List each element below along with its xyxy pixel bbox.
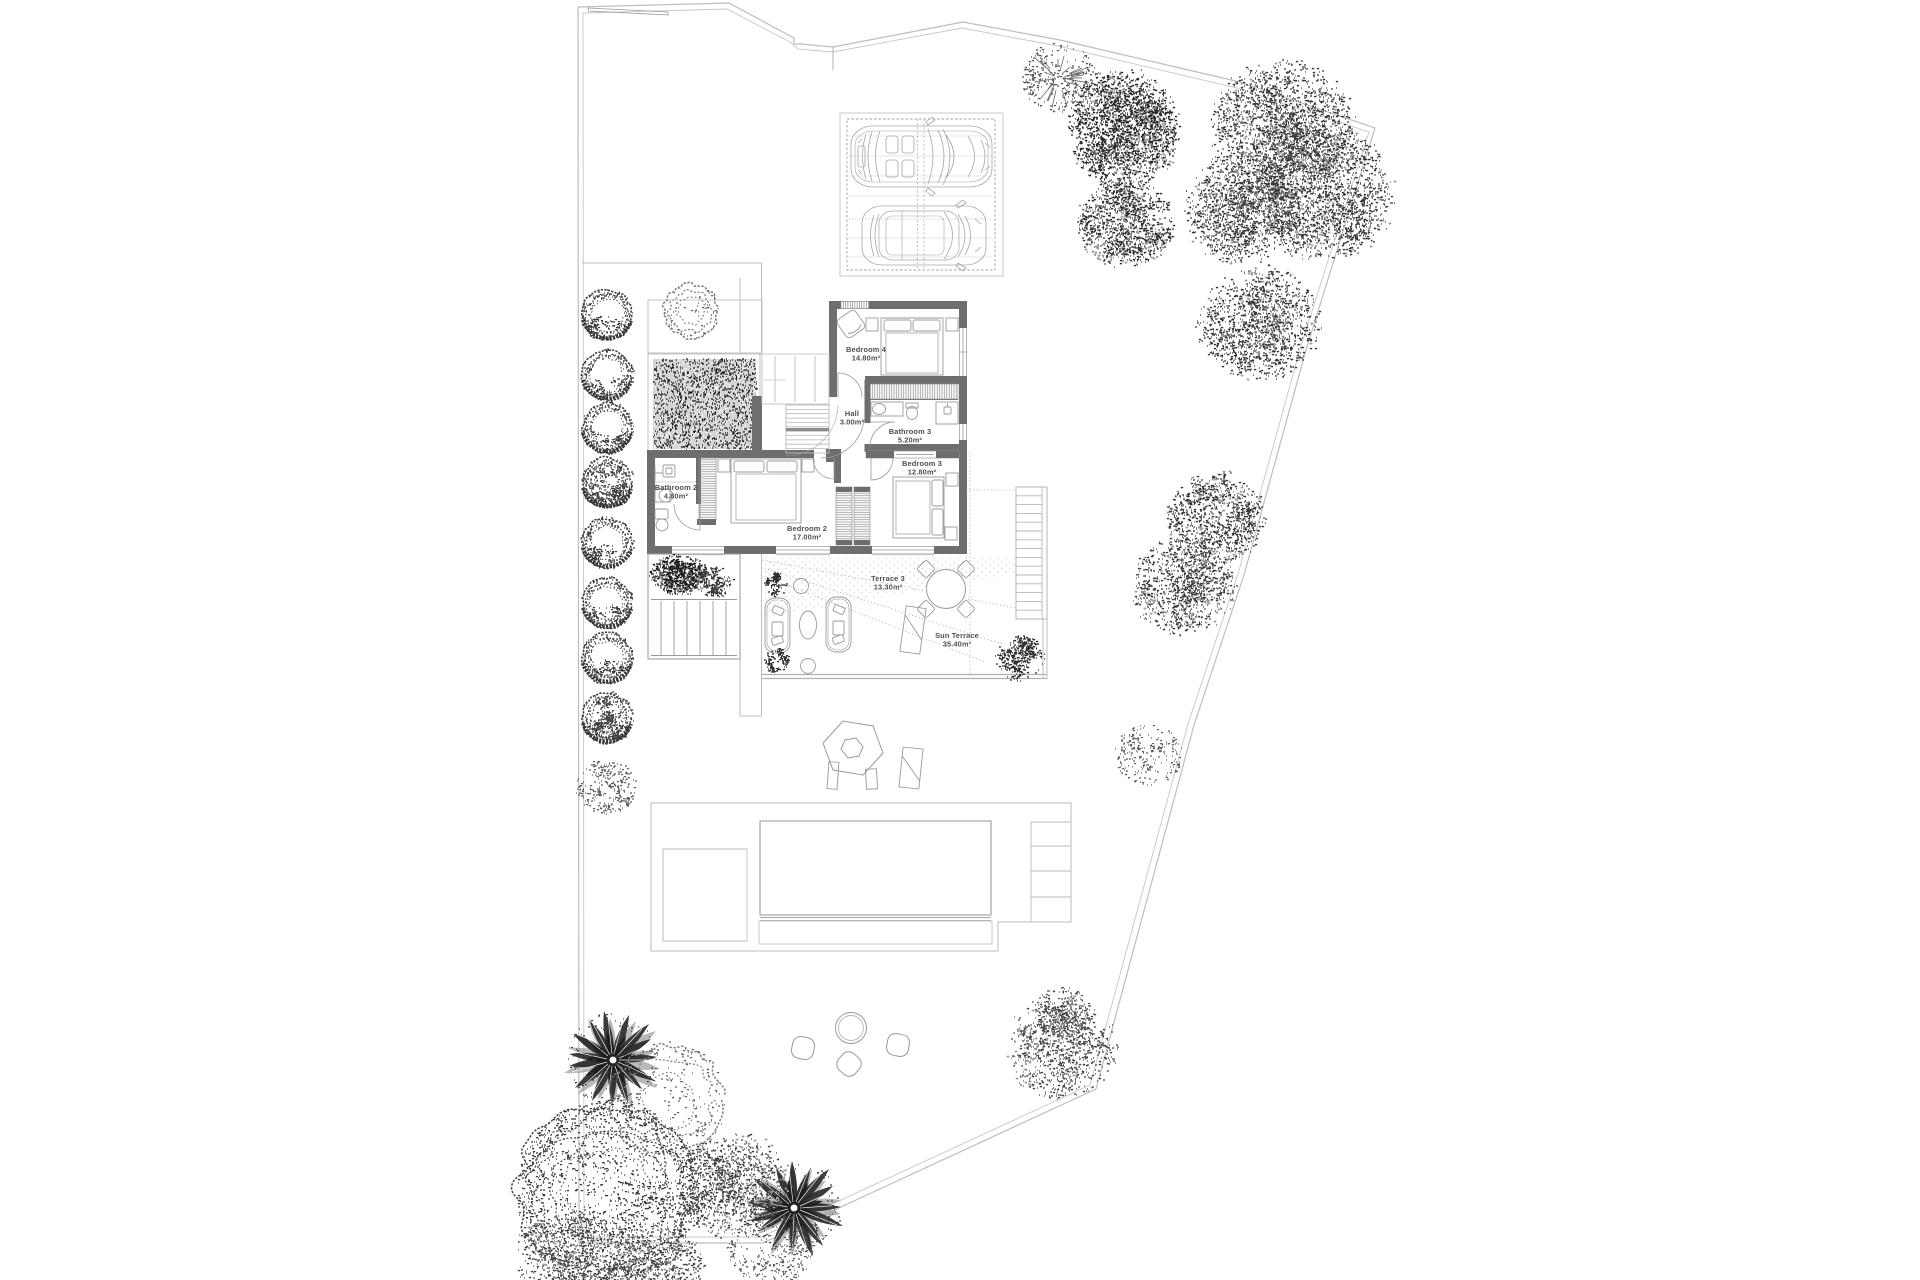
svg-text:17.00m²: 17.00m² — [793, 532, 822, 541]
svg-text:3.00m²: 3.00m² — [840, 417, 865, 426]
svg-text:5.20m²: 5.20m² — [898, 435, 923, 444]
svg-text:12.80m²: 12.80m² — [908, 467, 937, 476]
svg-text:4.80m²: 4.80m² — [664, 491, 689, 500]
svg-text:14.80m²: 14.80m² — [852, 353, 881, 362]
svg-text:35.40m²: 35.40m² — [943, 639, 972, 648]
